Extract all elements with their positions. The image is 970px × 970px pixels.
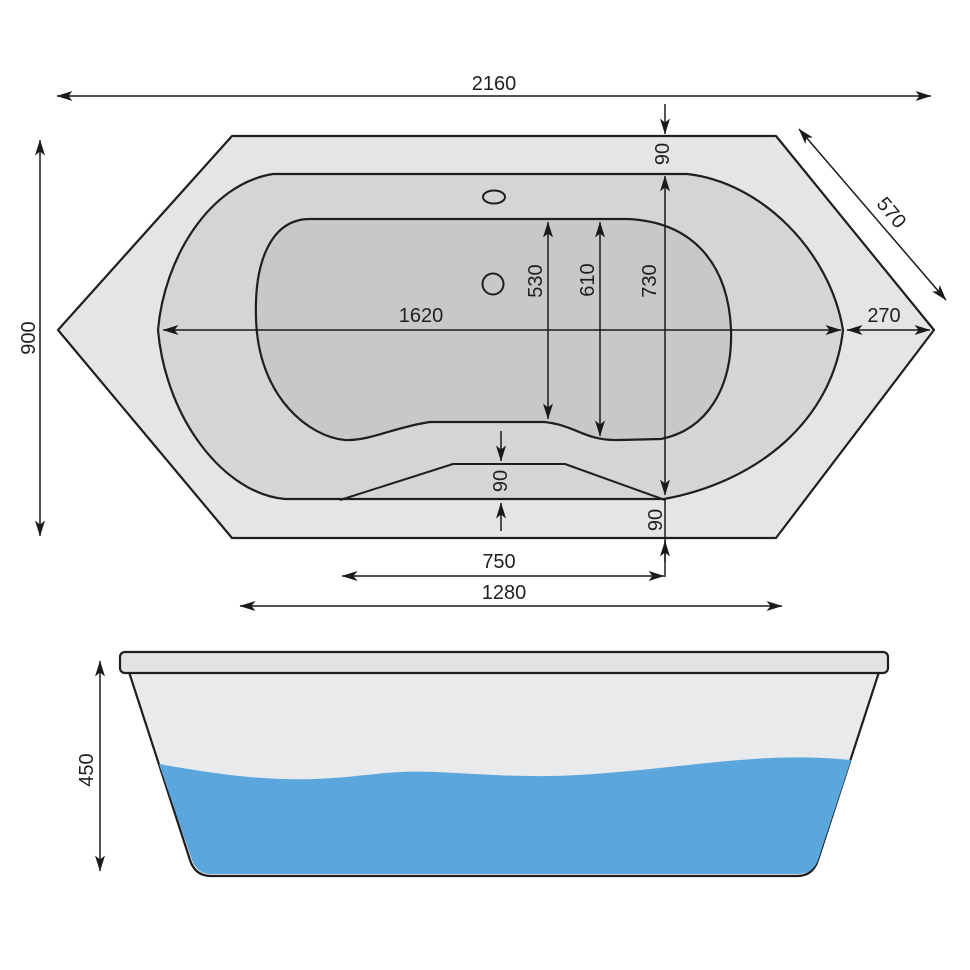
dim-label-rim-top: 90: [652, 143, 674, 165]
dim-label-rim-bottom: 90: [645, 509, 667, 531]
dim-label-overall-width: 900: [18, 321, 40, 354]
dim-label-opening-width: 730: [639, 264, 661, 297]
dim-label-seat-width: 750: [482, 551, 515, 573]
drawing-canvas: 2160 900 570 90 730 530 610 1620 270 90 …: [0, 0, 970, 970]
dim-label-bottom-edge: 1280: [482, 582, 527, 604]
dim-label-inner-length: 1620: [399, 305, 444, 327]
bathtub-technical-drawing: 2160 900 570 90 730 530 610 1620 270 90 …: [0, 0, 970, 970]
dim-label-basin-outer: 610: [577, 263, 599, 296]
dim-label-overall-length: 2160: [472, 73, 517, 95]
dim-label-height: 450: [76, 753, 98, 786]
side-view: 450: [76, 652, 888, 876]
dim-label-corner-edge: 570: [872, 193, 910, 233]
dim-label-basin-inner: 530: [525, 264, 547, 297]
dim-label-rim-right: 270: [867, 305, 900, 327]
dim-label-seat-rise: 90: [490, 470, 512, 492]
tub-rim-slab: [120, 652, 888, 673]
